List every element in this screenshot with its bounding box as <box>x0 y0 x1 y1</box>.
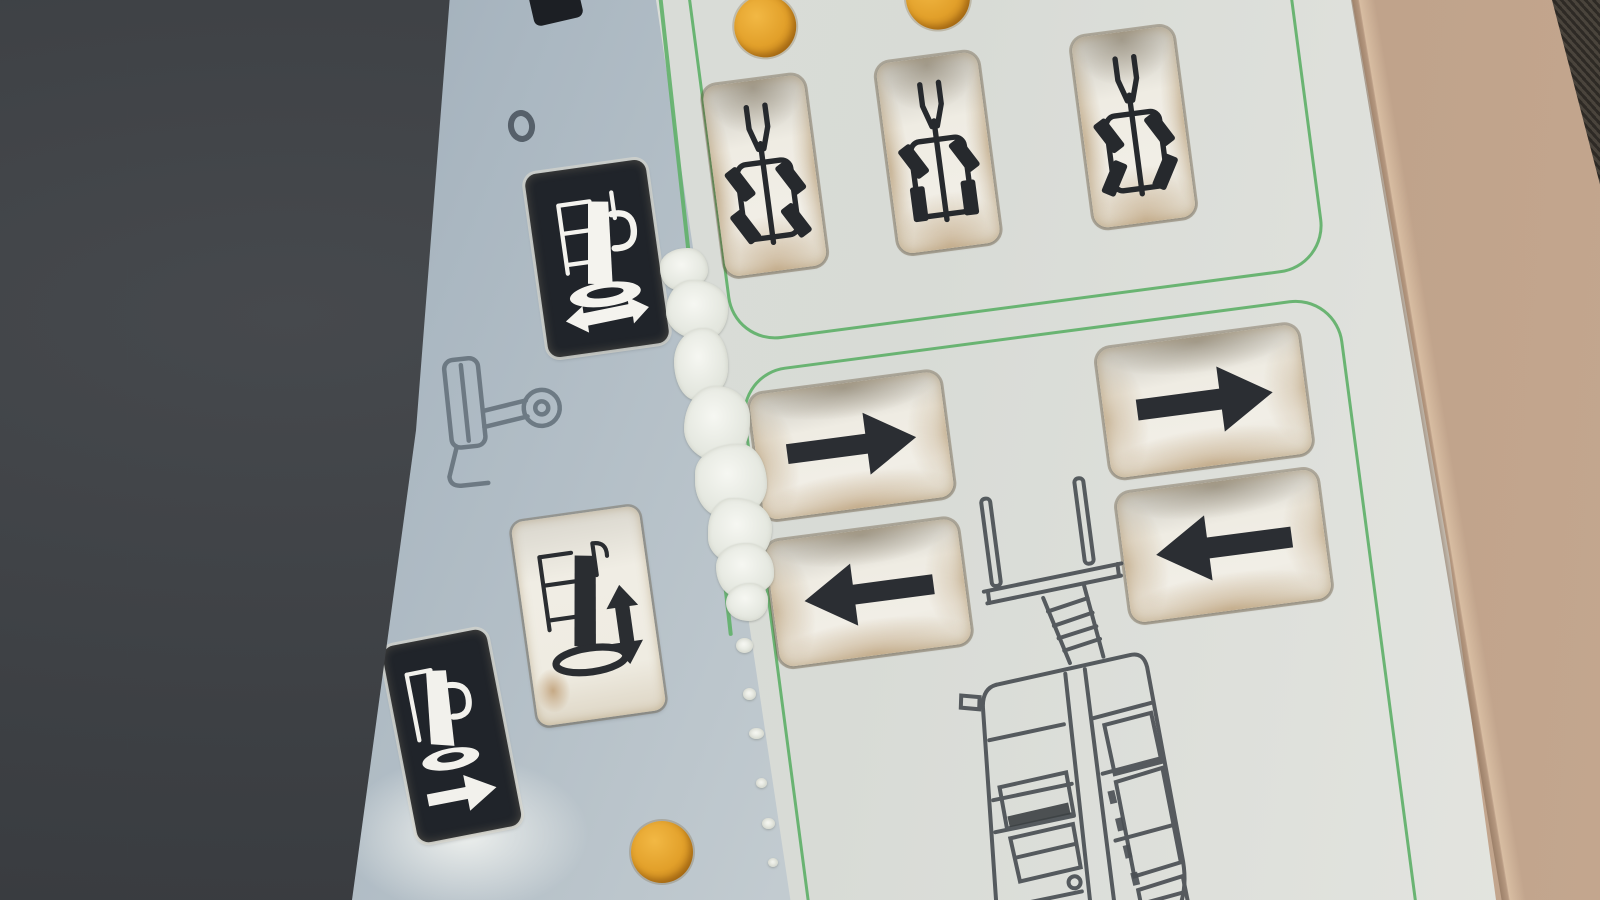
paint-fleck <box>749 728 764 739</box>
paint-fleck <box>736 638 753 653</box>
paint-chip <box>726 583 768 621</box>
paint-fleck <box>756 778 767 788</box>
paint-fleck <box>768 858 778 867</box>
photo-stage <box>0 0 1600 900</box>
paint-fleck <box>762 818 775 829</box>
paint-fleck <box>743 688 756 700</box>
